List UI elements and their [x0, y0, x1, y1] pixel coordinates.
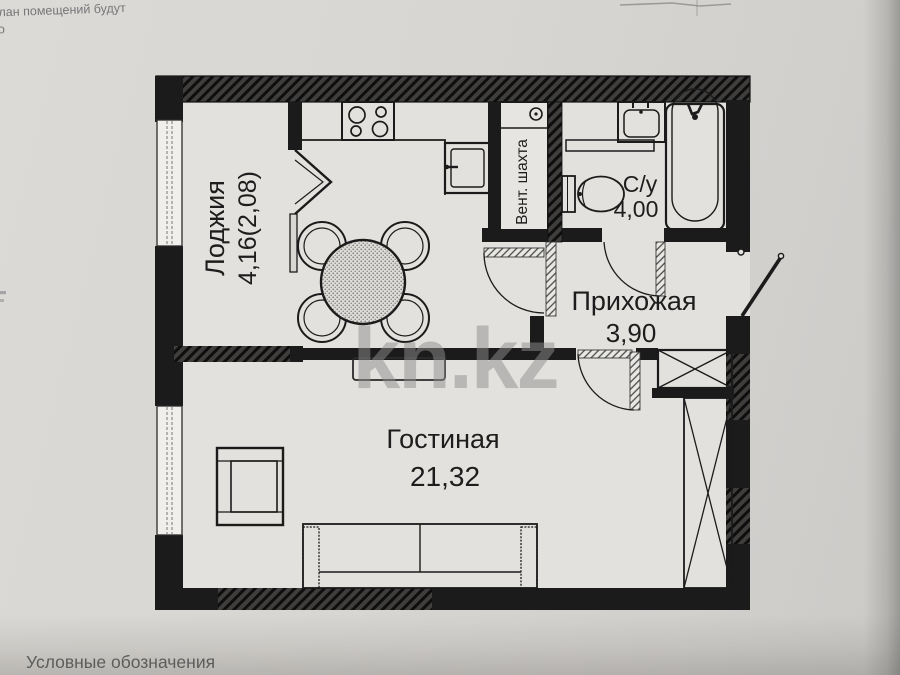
loggia-window [157, 120, 182, 246]
glass-partition [290, 214, 297, 272]
floor-plan-drawing: план помещений будут то [0, 0, 900, 675]
hallway-name: Прихожая [571, 286, 696, 316]
left-wall-segment [155, 76, 183, 122]
handwriting-line-1: план помещений будут [0, 1, 126, 20]
closet-wall [652, 388, 734, 398]
right-wall-upper [726, 100, 750, 252]
fan-icon-dot [534, 112, 537, 115]
page-edge-line [620, 3, 731, 6]
vent-shaft: Вент. шахта [500, 102, 562, 242]
living-area: 21,32 [410, 461, 480, 492]
living-room-window [157, 406, 182, 535]
handwriting-line-2: то [0, 22, 5, 36]
scanned-floor-plan-page: план помещений будут то [0, 0, 900, 675]
left-edge-mark [0, 299, 4, 302]
bathroom-name: С/у [623, 171, 658, 197]
kn-kz-watermark: kn.kz [352, 311, 557, 407]
hallway-area: 3,90 [606, 318, 657, 348]
legend-title: Условные обозначения [26, 652, 215, 672]
right-wall-hatch [726, 488, 750, 544]
bathroom-area: 4,00 [614, 196, 659, 222]
top-exterior-wall [156, 76, 750, 102]
loggia-name: Лоджия [200, 180, 230, 276]
left-wall-segment [155, 246, 183, 406]
loggia-bottom-wall-hatch [174, 346, 290, 362]
bottom-wall-hatch [218, 588, 432, 610]
living-name: Гостиная [386, 424, 499, 454]
handwritten-note: план помещений будут то [0, 1, 127, 37]
vent-shaft-hatched-wall [548, 102, 562, 242]
entrance-door-jamb [738, 249, 744, 255]
loggia-area: 4,16(2,08) [234, 171, 262, 285]
vent-shaft-label: Вент. шахта [514, 139, 531, 225]
loggia-kitchen-wall [288, 102, 302, 150]
entrance-door-tip [778, 253, 783, 258]
left-edge-mark [0, 291, 6, 294]
